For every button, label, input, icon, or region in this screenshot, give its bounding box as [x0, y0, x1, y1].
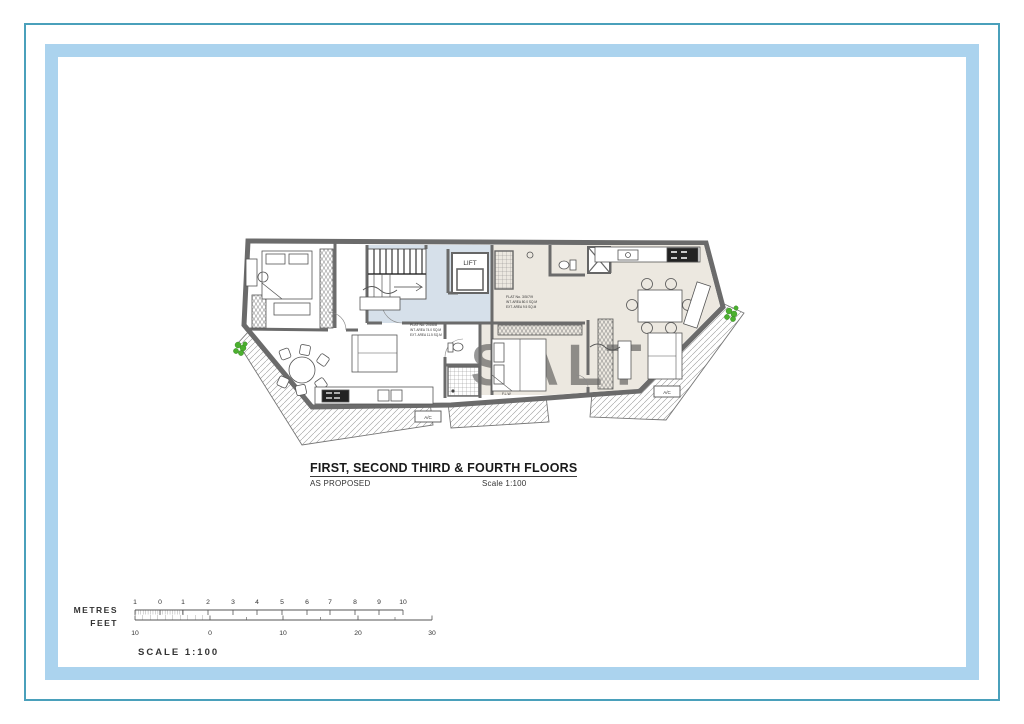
svg-text:5: 5 [280, 599, 284, 606]
svg-text:7: 7 [328, 599, 332, 606]
flat-right-line3: EXT. AREA 9.5 SQ.M [506, 305, 537, 309]
blueprint-page: SALT [0, 0, 1024, 724]
plan-scale-note: Scale 1:100 [482, 479, 526, 488]
feet-ruler [135, 615, 432, 620]
svg-text:10: 10 [131, 630, 139, 637]
lift: LIFT [452, 253, 488, 293]
svg-text:10: 10 [279, 630, 287, 637]
svg-text:9: 9 [377, 599, 381, 606]
flat-left-line2: INT. AREA 74.0 SQ.M [410, 328, 441, 332]
svg-text:30: 30 [428, 630, 436, 637]
feet-tick-labels: 10 0 10 20 30 [131, 630, 436, 637]
svg-text:6: 6 [305, 599, 309, 606]
flat-right-line2: INT. AREA 80.0 SQ.M [506, 300, 537, 304]
stairs [368, 249, 426, 299]
feet-label: FEET [90, 618, 118, 628]
svg-text:20: 20 [354, 630, 362, 637]
plan-subtitle: AS PROPOSED [310, 479, 370, 488]
floor-plan: SALT [230, 235, 750, 455]
svg-text:4: 4 [255, 599, 259, 606]
scale-bar: METRES FEET 1 0 1 2 3 4 5 6 7 8 9 10 [60, 595, 450, 660]
svg-text:0: 0 [158, 599, 162, 606]
ac-label-right: A/C [663, 390, 671, 395]
scale-caption: SCALE 1:100 [138, 647, 219, 658]
svg-text:3: 3 [231, 599, 235, 606]
ac-label-left: A/C [424, 415, 432, 420]
flat-left-line1: FLAT No. 2/4/6/8 [410, 323, 437, 327]
lift-label: LIFT [463, 260, 476, 267]
metres-label: METRES [74, 605, 118, 615]
svg-text:8: 8 [353, 599, 357, 606]
title-block: FIRST, SECOND THIRD & FOURTH FLOORS AS P… [310, 459, 580, 491]
flat-right-line1: FLAT No. 3/5/7/9 [506, 295, 533, 299]
svg-text:10: 10 [399, 599, 407, 606]
svg-text:0: 0 [208, 630, 212, 637]
metres-tick-labels: 1 0 1 2 3 4 5 6 7 8 9 10 [133, 599, 407, 606]
metres-ruler [135, 610, 403, 615]
flw-label: F.L.W [502, 392, 511, 396]
svg-text:1: 1 [133, 599, 137, 606]
flat-left-line3: EXT. AREA 11.5 SQ.M [410, 333, 442, 337]
plan-title: FIRST, SECOND THIRD & FOURTH FLOORS [310, 461, 577, 477]
svg-text:2: 2 [206, 599, 210, 606]
svg-text:1: 1 [181, 599, 185, 606]
